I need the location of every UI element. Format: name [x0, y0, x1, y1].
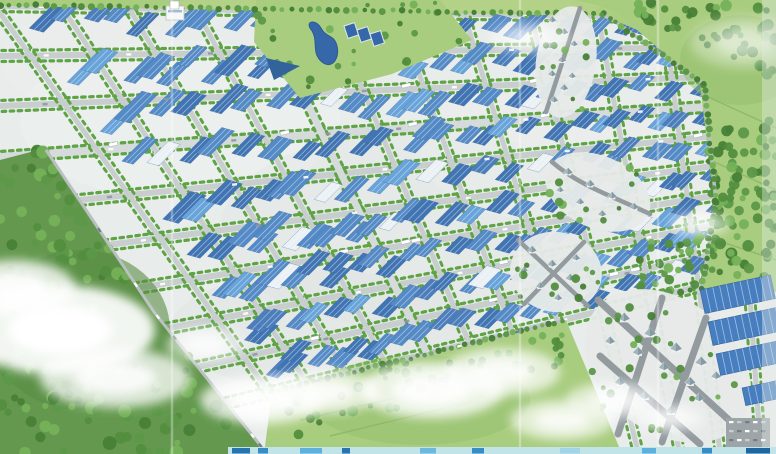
industrial-park-rendering [0, 0, 776, 454]
scene-svg [0, 0, 776, 454]
scan-haze [0, 0, 776, 454]
